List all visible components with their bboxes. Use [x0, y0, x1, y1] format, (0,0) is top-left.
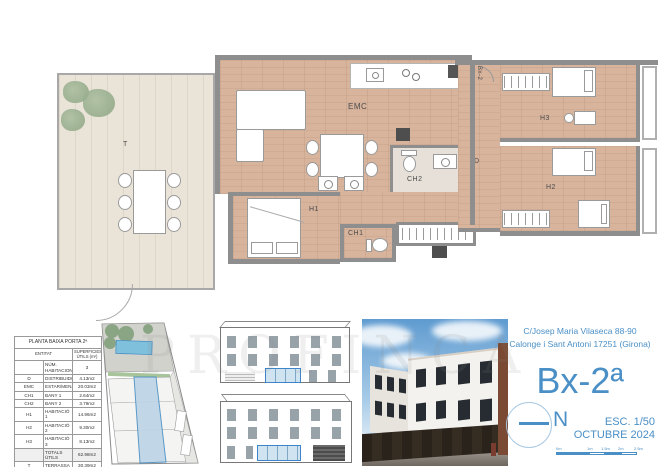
row-code: CH1	[15, 391, 44, 399]
dining-chair	[365, 162, 378, 177]
facade-outline	[220, 401, 352, 463]
balcony	[642, 66, 657, 140]
room-label-bed3: H3	[540, 115, 550, 122]
address-line-1: C/Josep Maria Vilaseca 88-90	[500, 325, 660, 338]
terrace-chair	[167, 173, 181, 188]
wall-segment	[458, 228, 500, 232]
toilet-icon	[403, 156, 416, 172]
scale-tick-label: 2m	[618, 446, 624, 451]
cooktop-burner-icon	[412, 73, 420, 81]
terrace-chair	[118, 217, 132, 232]
scale-segment	[605, 452, 621, 455]
row-code: T	[15, 462, 44, 467]
table-row: H2HABITACIÓ 29.30m2	[15, 421, 102, 435]
sofa-chaise	[236, 129, 264, 162]
scale-tick-label: 2.5m	[634, 446, 643, 451]
dining-chair	[306, 162, 319, 177]
bathroom-1: CH1	[340, 224, 396, 262]
row-code: H2	[15, 421, 44, 435]
window-row	[227, 427, 345, 439]
dining-chair	[306, 140, 319, 155]
scale-segment	[621, 452, 637, 455]
bedroom-3: H3	[500, 65, 640, 142]
pillow	[584, 151, 593, 171]
washer-drum-icon	[324, 180, 333, 189]
scale-bar: 0m 1m 1.5m 2m 2.5m	[556, 446, 652, 458]
room-label-bed2: H2	[546, 184, 556, 191]
terrace-chair	[167, 217, 181, 232]
unit-title: Bx-2ª	[500, 360, 660, 402]
row-name: DISTRIBUIDOR	[44, 374, 73, 382]
row-name: BANY 1	[44, 391, 73, 399]
desk	[574, 111, 596, 125]
hanger-rail-icon	[504, 76, 548, 88]
row-name: HABITACIÓ 2	[44, 421, 73, 435]
table-row: DDISTRIBUIDOR4.13m2	[15, 374, 102, 382]
row-code: EMC	[15, 383, 44, 391]
row-name: HABITACIÓ 1	[44, 408, 73, 422]
pillow	[276, 242, 298, 254]
table-header-entity: ENTITAT	[15, 348, 73, 361]
scale-text: ESC. 1/50	[545, 416, 655, 429]
sink-bowl-icon	[372, 72, 379, 79]
room-label-bath1: CH1	[348, 230, 364, 237]
table-row: EMCESTAR/MENJADOR/CUINA20.03m2	[15, 383, 102, 391]
row-code	[15, 361, 44, 375]
table-row: H3HABITACIÓ 38.13m2	[15, 435, 102, 449]
plant-icon	[83, 89, 115, 117]
room-label-bed1: H1	[309, 206, 319, 213]
row-code: H3	[15, 435, 44, 449]
row-code: H1	[15, 408, 44, 422]
pillow	[584, 70, 593, 92]
table-row-totals: TOTALS ÚTILS62.98m2	[15, 448, 102, 462]
hanger-rail-icon	[504, 213, 548, 225]
structural-post	[432, 246, 447, 258]
drawing-sheet: T EMC	[0, 0, 660, 467]
wall-segment	[470, 65, 475, 225]
table-row: CH2BANY 23.79m2	[15, 399, 102, 407]
room-label-terrace: T	[123, 141, 128, 148]
row-code: CH2	[15, 399, 44, 407]
window-row	[227, 446, 253, 459]
dining-chair	[365, 140, 378, 155]
north-arrow-line	[519, 422, 549, 425]
pillow	[601, 204, 607, 224]
table-row: TTERRASSA30.39m2	[15, 462, 102, 467]
table-row: H1HABITACIÓ 114.96m2	[15, 408, 102, 422]
scale-date-block: ESC. 1/50 OCTUBRE 2024	[545, 416, 655, 442]
toilet-icon	[372, 238, 388, 252]
row-code	[15, 448, 44, 462]
table-row: CH1BANY 12.64m2	[15, 391, 102, 399]
table-title: PLANTA BAIXA PORTA 2ª	[15, 337, 102, 349]
row-name: BANY 2	[44, 399, 73, 407]
watermark: PROFINCA	[140, 326, 530, 386]
terrace-room: T	[57, 73, 215, 290]
unit-entry-label: Bx-2	[476, 66, 482, 80]
hallway-floor	[340, 192, 476, 224]
garage-door	[313, 445, 345, 461]
table-row: NÚM. HABITACIONS3	[15, 361, 102, 375]
terrace-table	[133, 170, 166, 234]
address-line-2: Calonge i Sant Antoni 17251 (Girona)	[500, 338, 660, 351]
sink-bowl-icon	[350, 180, 359, 189]
scale-tick-label: 1.5m	[601, 446, 610, 451]
desk-chair	[564, 113, 574, 123]
scale-segment	[589, 452, 605, 455]
oven-icon	[396, 128, 410, 141]
row-name: TERRASSA	[44, 462, 73, 467]
pillow	[251, 242, 273, 254]
sofa	[236, 90, 306, 130]
sink-bowl-icon	[441, 158, 450, 167]
floor-plan: T EMC	[0, 40, 660, 302]
terrace-chair	[167, 195, 181, 210]
room-label-bath2: CH2	[407, 176, 423, 183]
row-code: D	[15, 374, 44, 382]
room-label-living: EMC	[348, 102, 367, 111]
bedroom-2: H2	[500, 146, 640, 236]
surface-table: PLANTA BAIXA PORTA 2ª ENTITAT SUPERFICIE…	[14, 336, 102, 467]
plant-icon	[61, 109, 85, 131]
dining-table	[320, 134, 364, 178]
balcony	[642, 148, 657, 234]
terrace-chair	[118, 173, 132, 188]
window-row	[227, 409, 345, 421]
elevation-rear	[214, 392, 359, 466]
scale-tick-label: 1m	[587, 446, 593, 451]
unit-highlight	[257, 445, 301, 461]
date-text: OCTUBRE 2024	[545, 429, 655, 442]
row-name: TOTALS ÚTILS	[44, 448, 73, 462]
bedroom-1: H1	[228, 192, 340, 264]
cooktop-burner-icon	[402, 69, 410, 77]
person-figure	[491, 443, 496, 456]
scale-tick-label: 0m	[556, 446, 562, 451]
distributor-hall: D	[458, 62, 500, 232]
terrace-chair	[118, 195, 132, 210]
door-swing-arc	[59, 247, 133, 321]
row-name: NÚM. HABITACIONS	[44, 361, 73, 375]
scale-segment	[556, 452, 589, 455]
row-name: HABITACIÓ 3	[44, 435, 73, 449]
project-address: C/Josep Maria Vilaseca 88-90 Calonge i S…	[500, 325, 660, 351]
row-name: ESTAR/MENJADOR/CUINA	[44, 383, 73, 391]
